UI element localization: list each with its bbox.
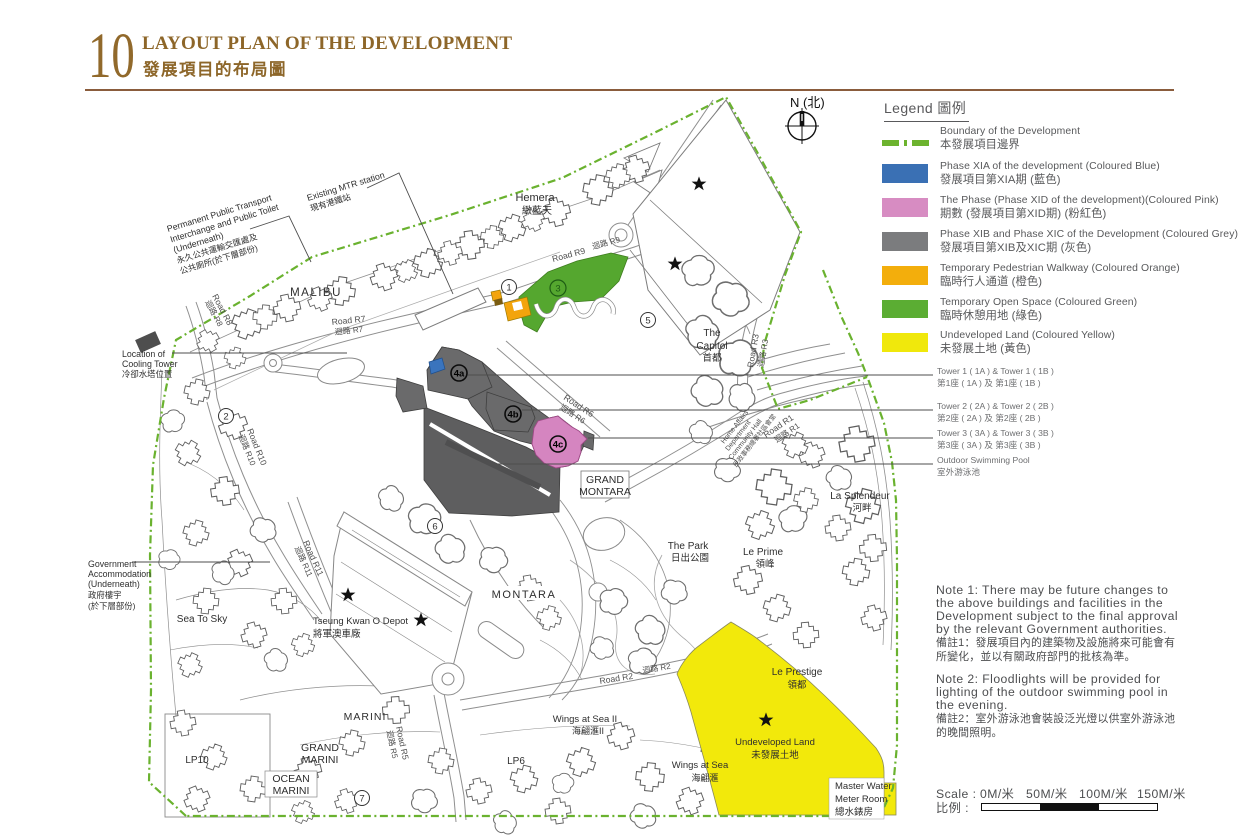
svg-text:MARINI: MARINI [302, 754, 339, 766]
svg-text:4b: 4b [507, 410, 518, 421]
svg-text:LP6: LP6 [507, 756, 525, 767]
svg-text:4c: 4c [553, 440, 564, 451]
svg-text:迴路 R9: 迴路 R9 [591, 234, 622, 251]
svg-text:GRAND: GRAND [586, 474, 624, 486]
svg-text:3: 3 [555, 284, 560, 295]
svg-text:(於下層部份): (於下層部份) [88, 601, 136, 611]
svg-text:7: 7 [359, 794, 364, 805]
svg-text:OCEAN: OCEAN [272, 773, 309, 785]
svg-text:Sea To Sky: Sea To Sky [177, 614, 227, 625]
svg-text:MARINI: MARINI [344, 711, 387, 723]
svg-text:GRAND: GRAND [301, 742, 339, 754]
svg-text:LP10: LP10 [185, 755, 209, 766]
svg-text:日出公園: 日出公園 [671, 552, 709, 564]
svg-text:領峰: 領峰 [755, 558, 775, 570]
svg-text:首都: 首都 [702, 352, 722, 364]
svg-text:Capitol: Capitol [696, 341, 727, 352]
svg-text:MONTARA: MONTARA [579, 486, 631, 498]
svg-text:未發展土地: 未發展土地 [751, 749, 799, 761]
svg-text:2: 2 [223, 412, 228, 423]
svg-text:Location of: Location of [122, 349, 166, 359]
svg-text:Cooling Tower: Cooling Tower [122, 359, 178, 369]
svg-text:N (北): N (北) [790, 95, 825, 110]
svg-text:5: 5 [645, 316, 650, 327]
svg-text:冷卻水塔位置: 冷卻水塔位置 [122, 369, 172, 379]
svg-text:Le Prestige: Le Prestige [772, 667, 823, 678]
svg-text:領都: 領都 [787, 679, 807, 691]
svg-text:(Underneath): (Underneath) [88, 579, 140, 589]
svg-text:MALIBU: MALIBU [290, 287, 342, 299]
svg-text:緻藍天: 緻藍天 [522, 204, 552, 217]
svg-text:海翩滙II: 海翩滙II [572, 725, 604, 736]
svg-text:Wings at Sea II: Wings at Sea II [553, 714, 617, 725]
svg-text:Master Water: Master Water [835, 781, 892, 792]
svg-text:Hemera: Hemera [515, 192, 555, 204]
svg-text:6: 6 [432, 522, 437, 533]
svg-text:Tseung Kwan O Depot: Tseung Kwan O Depot [313, 616, 408, 627]
svg-text:4a: 4a [454, 369, 465, 380]
svg-text:政府樓宇: 政府樓宇 [88, 590, 122, 600]
svg-text:MONTARA: MONTARA [492, 589, 557, 601]
svg-text:1: 1 [506, 283, 511, 294]
svg-text:The: The [703, 328, 721, 339]
svg-text:河畔: 河畔 [852, 502, 872, 514]
svg-text:總水錶房: 總水錶房 [835, 806, 873, 818]
svg-text:Wings at Sea: Wings at Sea [672, 760, 729, 771]
svg-text:將軍澳車廠: 將軍澳車廠 [313, 628, 361, 640]
svg-text:Undeveloped Land: Undeveloped Land [735, 737, 815, 748]
svg-text:MARINI: MARINI [273, 785, 310, 797]
svg-text:海翩滙: 海翩滙 [691, 772, 718, 783]
svg-text:The Park: The Park [668, 541, 710, 552]
svg-text:Accommodation: Accommodation [88, 569, 151, 579]
svg-text:Meter Room: Meter Room [835, 794, 887, 805]
svg-text:La Splendeur: La Splendeur [830, 491, 890, 502]
svg-text:Le Prime: Le Prime [743, 547, 783, 558]
svg-text:Government: Government [88, 559, 137, 569]
